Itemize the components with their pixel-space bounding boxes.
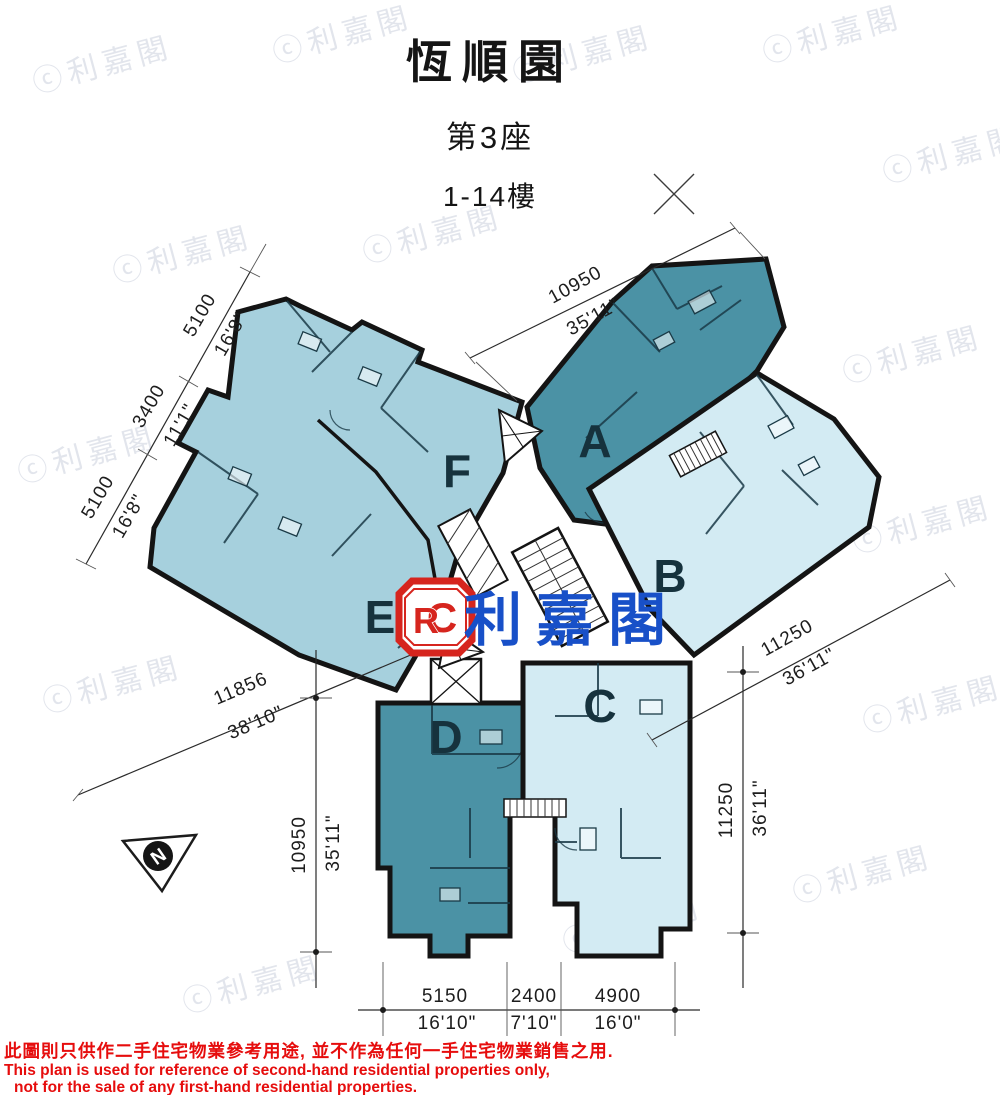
logo-letter-r: R [413,600,439,641]
dim-bottom3-mm: 4900 [595,986,641,1007]
dim-bottom2-mm: 2400 [511,986,557,1007]
dim-bottom2-ft: 7'10" [510,1013,557,1034]
dim-chain3-mm: 5100 [78,472,119,523]
dim-left-vertical: 10950 35'11" [289,650,344,988]
dim-chain3-ft: 16'8" [108,491,150,542]
floor-plan-page: ⓒ利嘉閣 ⓒ利嘉閣 ⓒ利嘉閣 ⓒ利嘉閣 ⓒ利嘉閣 ⓒ利嘉閣 ⓒ利嘉閣 ⓒ利嘉閣 … [0,0,1000,1095]
ricacorp-logo: C R 利嘉閣 [399,581,680,653]
estate-name: 恆順園 [0,26,980,92]
dim-right-diagonal-mm: 11250 [758,615,818,661]
dim-bottom: 5150 16'10" 2400 7'10" 4900 16'0" [358,962,700,1036]
dim-right-diagonal-ft: 36'11" [779,644,839,690]
lightwell-dc [504,799,566,817]
logo-company-name: 利嘉閣 [464,588,680,653]
dim-left-diagonal-mm: 11856 [211,668,271,709]
dim-bottom1-ft: 16'10" [418,1013,477,1034]
disclaimer: 此圖則只供作二手住宅物業參考用途, 並不作為任何一手住宅物業銷售之用. This… [4,1042,614,1095]
dim-chain2-mm: 3400 [129,381,170,432]
disclaimer-english-2: not for the sale of any first-hand resid… [4,1079,614,1095]
unit-label-e: E [365,591,396,643]
dim-left-diagonal-ft: 38'10" [225,702,287,744]
dim-left-vertical-mm: 10950 [289,816,310,874]
fixture [480,730,502,744]
fixture [580,828,596,850]
disclaimer-chinese: 此圖則只供作二手住宅物業參考用途, 並不作為任何一手住宅物業銷售之用. [4,1042,614,1062]
disclaimer-english-1: This plan is used for reference of secon… [4,1062,614,1079]
dim-bottom3-ft: 16'0" [594,1013,641,1034]
dim-top-right-mm: 10950 [545,262,606,308]
unit-label-f: F [443,445,471,497]
dim-chain1-mm: 5100 [180,290,221,341]
dim-right-vertical-ft: 36'11" [750,779,771,836]
floor-range: 1-14樓 [0,175,980,215]
unit-label-c: C [583,680,616,732]
title-block: 恆順園 第3座 1-14樓 [0,26,980,215]
unit-label-a: A [578,415,611,467]
dim-right-vertical-mm: 11250 [716,782,737,838]
dim-bottom1-mm: 5150 [422,986,468,1007]
block-number: 第3座 [0,112,980,157]
fixture [640,700,662,714]
unit-label-d: D [429,711,462,763]
fixture [440,888,460,901]
dim-left-vertical-ft: 35'11" [323,814,344,871]
north-arrow-icon: N [123,835,196,891]
dim-right-vertical: 11250 36'11" [716,646,771,988]
